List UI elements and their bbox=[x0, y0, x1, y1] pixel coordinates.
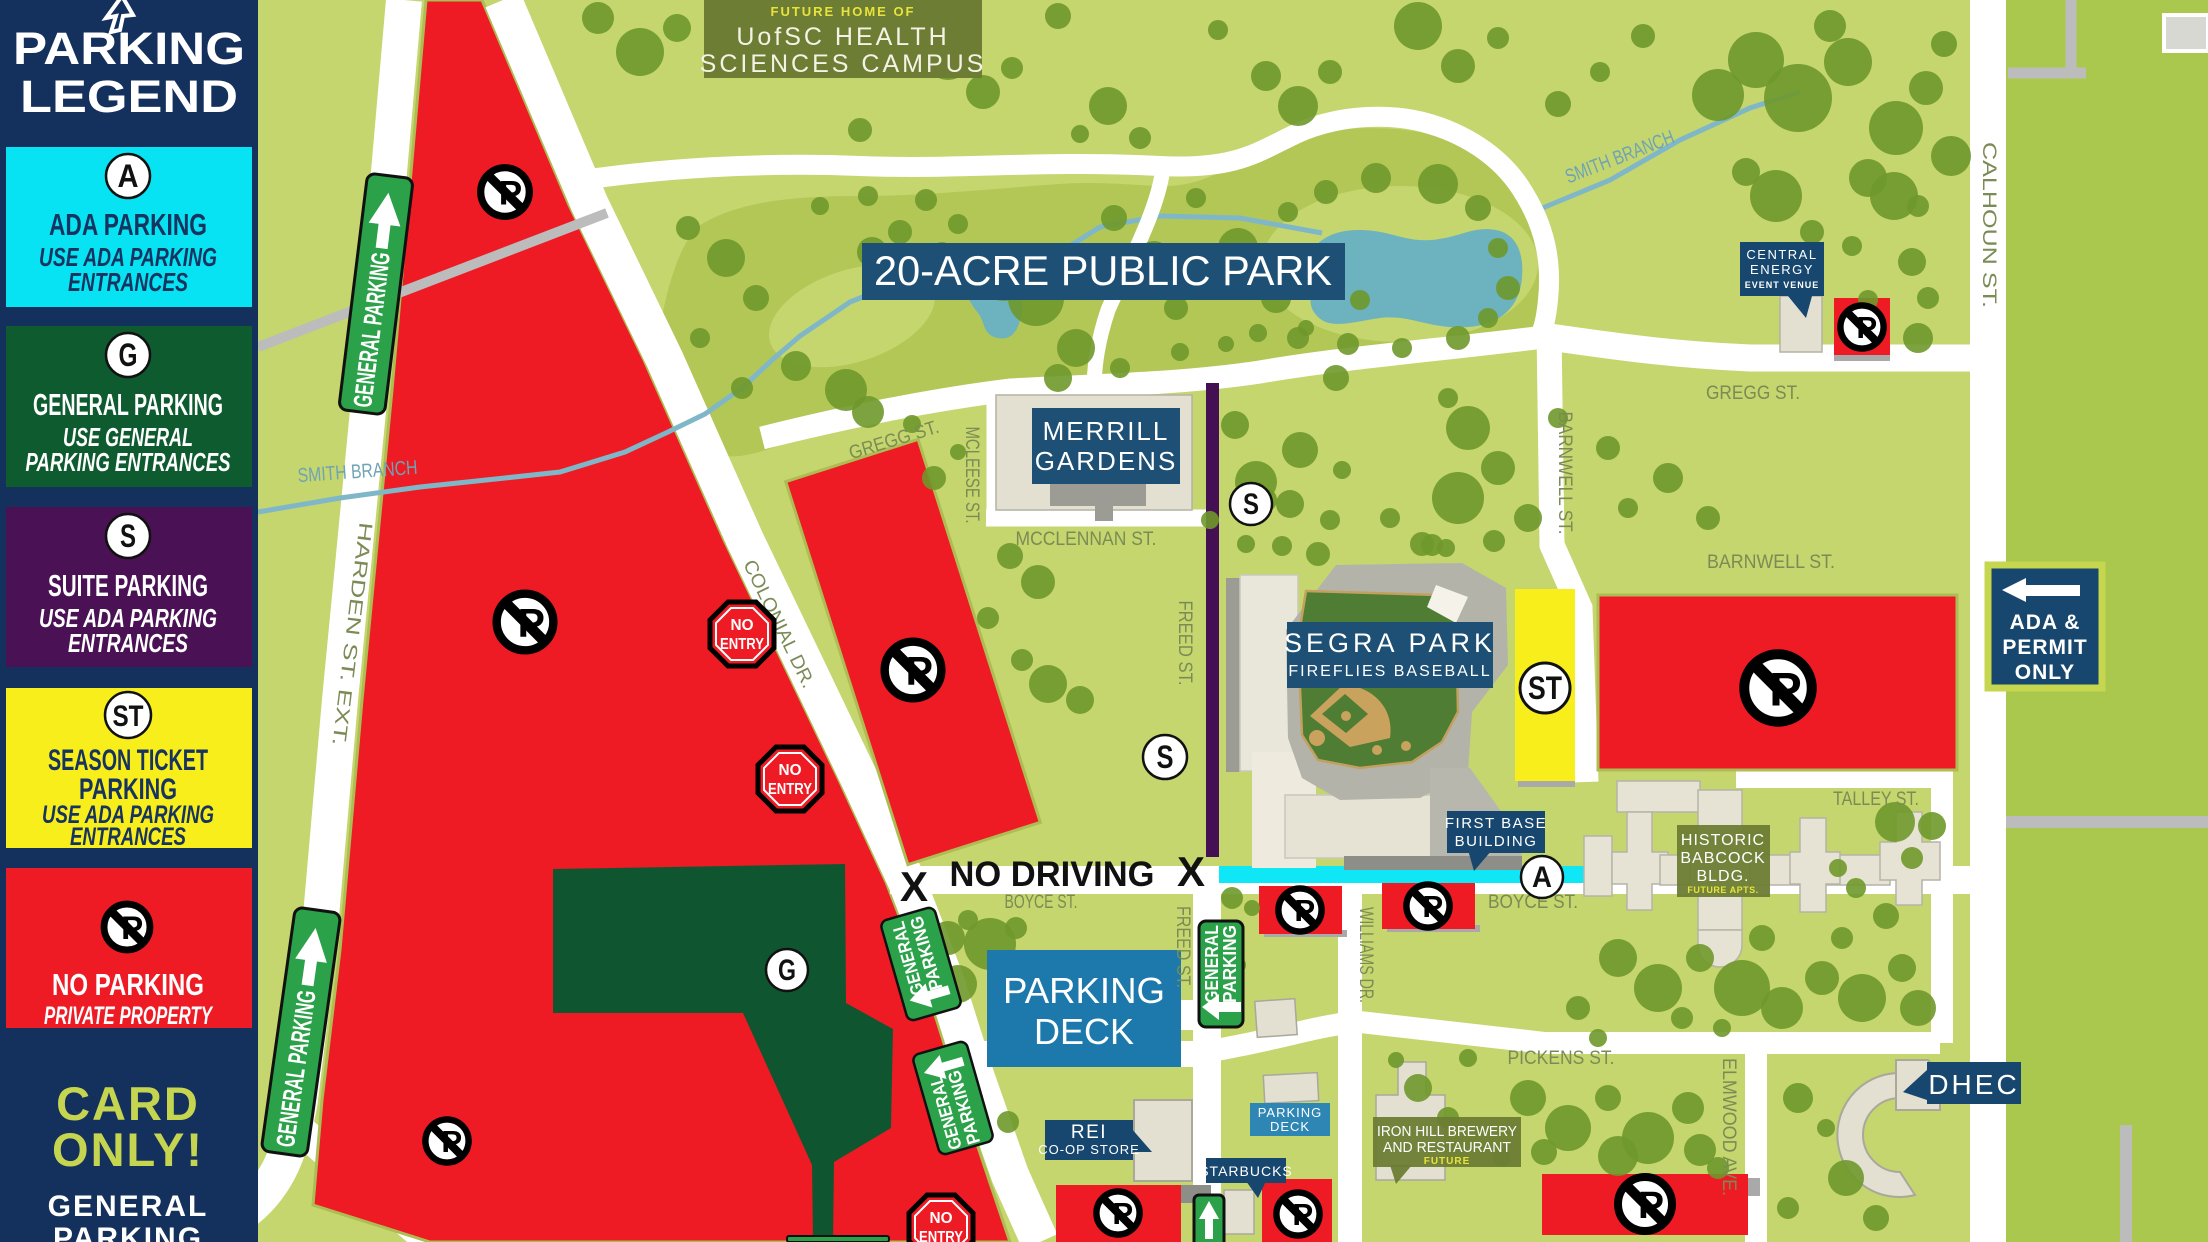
svg-text:FREED ST.: FREED ST. bbox=[1174, 601, 1195, 686]
svg-text:CENTRAL: CENTRAL bbox=[1746, 247, 1817, 262]
svg-text:ADA &: ADA & bbox=[2010, 611, 2081, 634]
svg-text:FUTURE HOME OF: FUTURE HOME OF bbox=[771, 4, 916, 19]
svg-text:DECK: DECK bbox=[1034, 1011, 1134, 1052]
svg-text:ENTRANCES: ENTRANCES bbox=[68, 628, 188, 658]
svg-text:SCIENCES CAMPUS: SCIENCES CAMPUS bbox=[700, 50, 987, 78]
svg-text:ENTRANCES: ENTRANCES bbox=[70, 823, 186, 851]
svg-text:NO DRIVING: NO DRIVING bbox=[950, 855, 1155, 894]
svg-text:GREGG ST.: GREGG ST. bbox=[1706, 383, 1800, 404]
svg-text:GENERAL: GENERAL bbox=[48, 1190, 209, 1223]
svg-text:ST: ST bbox=[1528, 670, 1562, 706]
svg-text:PARKING: PARKING bbox=[1003, 970, 1165, 1011]
svg-text:PARKING ENTRANCES: PARKING ENTRANCES bbox=[26, 447, 231, 477]
svg-text:LEGEND: LEGEND bbox=[20, 71, 238, 122]
svg-text:ST: ST bbox=[113, 700, 144, 733]
svg-text:BARNWELL ST.: BARNWELL ST. bbox=[1707, 552, 1835, 573]
svg-text:NO: NO bbox=[930, 1210, 953, 1227]
svg-text:ENERGY: ENERGY bbox=[1750, 262, 1814, 277]
svg-text:X: X bbox=[900, 863, 928, 910]
svg-text:BABCOCK: BABCOCK bbox=[1680, 850, 1765, 867]
svg-text:BLDG.: BLDG. bbox=[1696, 868, 1749, 885]
svg-text:WILLIAMS DR.: WILLIAMS DR. bbox=[1355, 907, 1376, 1003]
svg-text:BUILDING: BUILDING bbox=[1455, 833, 1538, 850]
svg-text:BOYCE ST.: BOYCE ST. bbox=[1005, 892, 1078, 913]
svg-text:ENTRY: ENTRY bbox=[768, 781, 812, 798]
svg-text:ADA PARKING: ADA PARKING bbox=[49, 207, 207, 242]
svg-text:S: S bbox=[120, 518, 136, 554]
svg-text:PARKING: PARKING bbox=[1258, 1105, 1323, 1120]
svg-text:GENERAL PARKING: GENERAL PARKING bbox=[33, 387, 223, 422]
svg-text:PARKING: PARKING bbox=[53, 1222, 203, 1242]
svg-text:PERMIT: PERMIT bbox=[2002, 636, 2087, 659]
svg-text:REI: REI bbox=[1071, 1122, 1107, 1143]
svg-text:MCCLENNAN ST.: MCCLENNAN ST. bbox=[1016, 529, 1157, 550]
svg-text:G: G bbox=[119, 337, 138, 373]
svg-text:G: G bbox=[778, 954, 796, 987]
svg-text:20-ACRE PUBLIC PARK: 20-ACRE PUBLIC PARK bbox=[874, 247, 1332, 294]
svg-text:NO: NO bbox=[731, 617, 754, 634]
svg-text:ONLY: ONLY bbox=[2015, 661, 2075, 684]
svg-text:MCLEESE ST.: MCLEESE ST. bbox=[961, 427, 982, 524]
svg-text:AND RESTAURANT: AND RESTAURANT bbox=[1383, 1139, 1511, 1156]
svg-text:S: S bbox=[1243, 488, 1259, 521]
svg-text:STARBUCKS: STARBUCKS bbox=[1199, 1163, 1293, 1179]
svg-text:SEGRA PARK: SEGRA PARK bbox=[1284, 628, 1496, 658]
svg-text:PARKING: PARKING bbox=[13, 23, 245, 74]
svg-text:MERRILL: MERRILL bbox=[1043, 416, 1170, 446]
svg-text:ENTRY: ENTRY bbox=[720, 636, 764, 653]
svg-text:GARDENS: GARDENS bbox=[1035, 446, 1178, 476]
svg-text:FIREFLIES BASEBALL: FIREFLIES BASEBALL bbox=[1288, 663, 1491, 680]
svg-text:FIRST BASE: FIRST BASE bbox=[1445, 815, 1547, 832]
svg-text:FREED ST.: FREED ST. bbox=[1172, 906, 1193, 988]
svg-text:ENTRY: ENTRY bbox=[919, 1229, 963, 1242]
svg-text:CO-OP STORE: CO-OP STORE bbox=[1038, 1142, 1140, 1157]
svg-text:GENERAL: GENERAL bbox=[1202, 925, 1222, 1003]
svg-text:CALHOUN ST.: CALHOUN ST. bbox=[1978, 142, 1999, 308]
svg-text:ELMWOOD AVE.: ELMWOOD AVE. bbox=[1718, 1058, 1739, 1196]
svg-text:EVENT VENUE: EVENT VENUE bbox=[1745, 280, 1820, 290]
svg-text:SUITE PARKING: SUITE PARKING bbox=[48, 568, 208, 603]
svg-text:ONLY!: ONLY! bbox=[52, 1123, 204, 1176]
svg-text:PICKENS ST.: PICKENS ST. bbox=[1508, 1048, 1615, 1069]
svg-text:PRIVATE PROPERTY: PRIVATE PROPERTY bbox=[44, 1002, 214, 1030]
svg-text:NO: NO bbox=[779, 762, 802, 779]
svg-text:X: X bbox=[1177, 848, 1205, 895]
svg-text:FUTURE APTS.: FUTURE APTS. bbox=[1687, 885, 1758, 895]
svg-text:IRON HILL BREWERY: IRON HILL BREWERY bbox=[1377, 1123, 1517, 1140]
svg-text:S: S bbox=[1157, 739, 1174, 775]
svg-text:TALLEY ST.: TALLEY ST. bbox=[1833, 789, 1919, 810]
svg-text:DECK: DECK bbox=[1270, 1119, 1310, 1134]
svg-text:BARNWELL ST.: BARNWELL ST. bbox=[1554, 412, 1575, 535]
svg-text:UofSC HEALTH: UofSC HEALTH bbox=[736, 23, 949, 51]
svg-text:DHEC: DHEC bbox=[1928, 1069, 2019, 1100]
svg-text:NO PARKING: NO PARKING bbox=[52, 967, 204, 1002]
svg-text:PARKING: PARKING bbox=[1220, 925, 1240, 1003]
svg-text:A: A bbox=[1532, 861, 1552, 894]
svg-text:ENTRANCES: ENTRANCES bbox=[68, 267, 188, 297]
svg-text:A: A bbox=[118, 158, 139, 194]
svg-text:FUTURE: FUTURE bbox=[1424, 1156, 1471, 1167]
svg-text:HISTORIC: HISTORIC bbox=[1681, 832, 1765, 849]
